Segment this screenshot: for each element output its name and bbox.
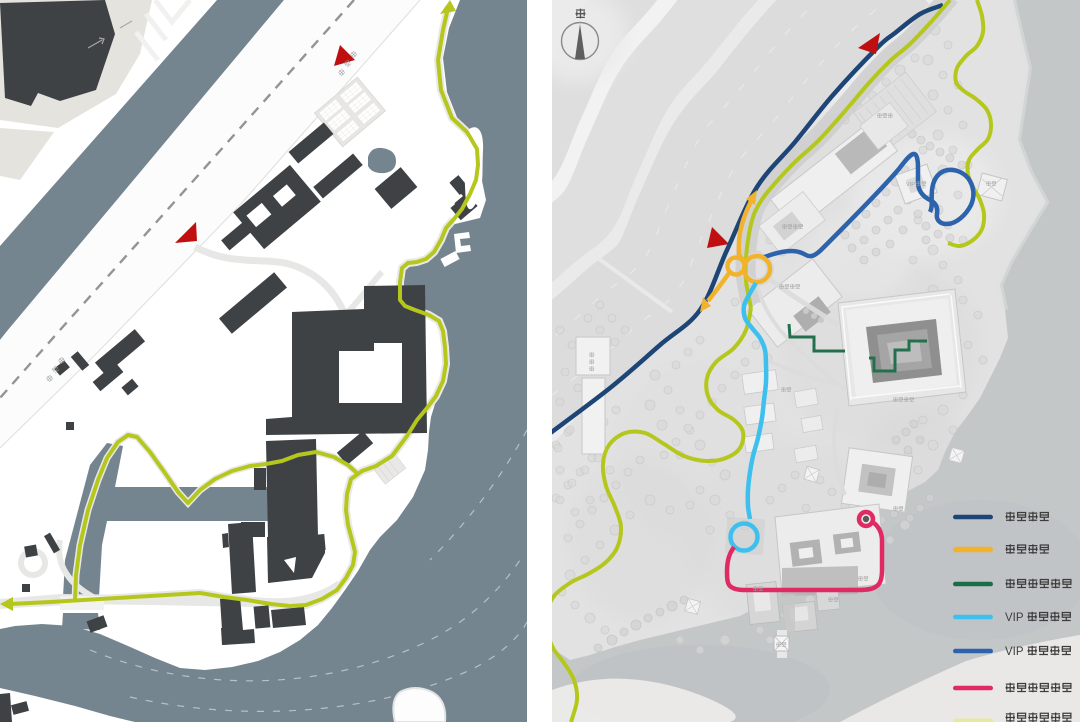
svg-text:VIP: VIP xyxy=(1005,646,1024,658)
svg-text:VIP: VIP xyxy=(1005,612,1024,624)
svg-text:VIP: VIP xyxy=(906,182,915,188)
